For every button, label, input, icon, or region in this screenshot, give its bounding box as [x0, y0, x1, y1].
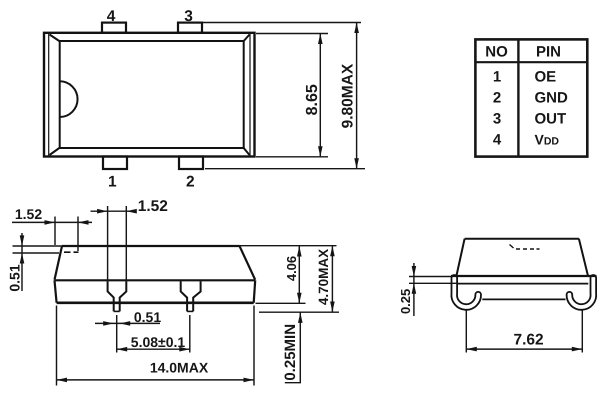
svg-text:0.51: 0.51	[134, 309, 161, 325]
svg-text:4.70MAX: 4.70MAX	[316, 249, 331, 305]
svg-text:0.51: 0.51	[7, 264, 23, 291]
svg-text:1: 1	[108, 173, 117, 190]
svg-text:1: 1	[493, 69, 501, 86]
svg-text:9.80MAX: 9.80MAX	[340, 63, 357, 128]
svg-text:3: 3	[184, 8, 193, 25]
svg-text:2: 2	[493, 90, 501, 107]
svg-text:OUT: OUT	[535, 111, 567, 128]
svg-text:GND: GND	[535, 90, 569, 107]
svg-text:7.62: 7.62	[514, 332, 544, 349]
svg-text:4: 4	[107, 8, 116, 25]
svg-text:1.52: 1.52	[15, 206, 42, 222]
svg-text:1.52: 1.52	[138, 198, 168, 215]
svg-text:4.06: 4.06	[284, 256, 299, 281]
svg-text:PIN: PIN	[536, 44, 561, 61]
svg-text:OE: OE	[535, 69, 557, 86]
svg-text:5.08±0.1: 5.08±0.1	[131, 334, 186, 350]
svg-text:NO: NO	[485, 44, 508, 61]
svg-text:3: 3	[493, 111, 501, 128]
svg-text:0.25MIN: 0.25MIN	[282, 324, 299, 381]
svg-text:0.25: 0.25	[398, 289, 413, 314]
svg-text:2: 2	[186, 173, 195, 190]
svg-text:14.0MAX: 14.0MAX	[150, 360, 209, 376]
svg-text:8.65: 8.65	[304, 84, 321, 115]
svg-text:4: 4	[493, 132, 502, 149]
